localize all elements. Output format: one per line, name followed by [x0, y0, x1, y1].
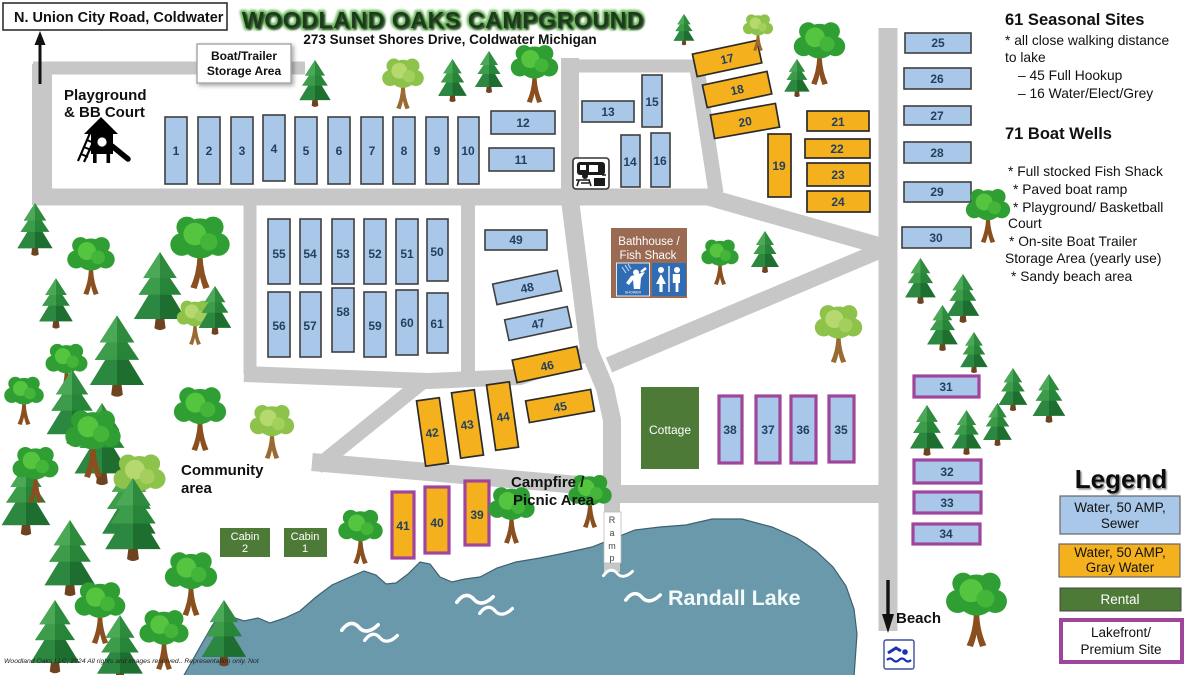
- svg-text:Cabin: Cabin: [231, 531, 260, 543]
- svg-text:Legend: Legend: [1075, 464, 1167, 494]
- svg-text:R: R: [609, 515, 616, 525]
- svg-text:37: 37: [761, 423, 775, 437]
- svg-text:20: 20: [737, 114, 753, 130]
- svg-text:– 16 Water/Elect/Grey: – 16 Water/Elect/Grey: [1018, 86, 1153, 101]
- svg-text:Bathhouse /: Bathhouse /: [618, 236, 680, 248]
- svg-text:71 Boat Wells: 71 Boat Wells: [1005, 125, 1112, 143]
- svg-text:Premium Site: Premium Site: [1080, 642, 1161, 657]
- svg-text:26: 26: [930, 72, 944, 86]
- svg-text:Beach: Beach: [896, 610, 941, 627]
- svg-text:Lakefront/: Lakefront/: [1091, 625, 1151, 640]
- svg-text:41: 41: [396, 519, 410, 533]
- svg-text:SHOWER: SHOWER: [625, 291, 642, 295]
- svg-text:7: 7: [369, 144, 376, 158]
- svg-text:38: 38: [723, 423, 737, 437]
- svg-text:52: 52: [368, 247, 382, 261]
- svg-text:Court: Court: [1008, 216, 1042, 231]
- svg-text:50: 50: [430, 245, 444, 259]
- svg-text:Cabin: Cabin: [291, 531, 320, 543]
- svg-text:5: 5: [303, 144, 310, 158]
- svg-text:14: 14: [623, 155, 637, 169]
- svg-text:61 Seasonal Sites: 61 Seasonal Sites: [1005, 11, 1144, 29]
- svg-text:55: 55: [272, 247, 286, 261]
- svg-text:45: 45: [552, 399, 568, 415]
- svg-text:54: 54: [303, 247, 317, 261]
- svg-text:* On-site Boat Trailer: * On-site Boat Trailer: [1009, 234, 1137, 249]
- svg-text:8: 8: [401, 144, 408, 158]
- svg-text:10: 10: [461, 144, 475, 158]
- svg-text:* Sandy beach area: * Sandy beach area: [1011, 269, 1133, 284]
- svg-text:44: 44: [496, 409, 511, 425]
- svg-text:11: 11: [515, 153, 528, 167]
- svg-text:* Paved boat ramp: * Paved boat ramp: [1013, 182, 1128, 197]
- svg-text:29: 29: [930, 185, 944, 199]
- svg-text:15: 15: [645, 95, 659, 109]
- svg-text:1: 1: [302, 543, 308, 555]
- svg-text:31: 31: [939, 380, 953, 394]
- svg-text:Community: Community: [181, 462, 264, 479]
- svg-text:53: 53: [336, 247, 350, 261]
- svg-text:Water, 50 AMP,: Water, 50 AMP,: [1074, 545, 1166, 560]
- svg-text:58: 58: [336, 305, 350, 319]
- svg-text:3: 3: [239, 144, 246, 158]
- svg-text:& BB Court: & BB Court: [64, 104, 145, 121]
- svg-text:Water, 50 AMP,: Water, 50 AMP,: [1074, 500, 1166, 515]
- svg-text:60: 60: [400, 316, 414, 330]
- svg-text:1: 1: [173, 144, 180, 158]
- svg-text:Storage Area (yearly use): Storage Area (yearly use): [1005, 251, 1161, 266]
- svg-text:Playground: Playground: [64, 87, 147, 104]
- svg-text:Gray Water: Gray Water: [1086, 560, 1155, 575]
- svg-text:2: 2: [206, 144, 213, 158]
- svg-text:59: 59: [368, 319, 382, 333]
- svg-text:N. Union City Road, Coldwater: N. Union City Road, Coldwater: [14, 10, 224, 26]
- svg-text:22: 22: [830, 142, 844, 156]
- svg-text:43: 43: [460, 417, 475, 433]
- svg-text:19: 19: [772, 159, 786, 173]
- svg-text:25: 25: [931, 36, 945, 50]
- svg-text:49: 49: [509, 233, 523, 247]
- svg-text:51: 51: [400, 247, 414, 261]
- svg-text:4: 4: [271, 142, 278, 156]
- svg-text:a: a: [609, 528, 614, 538]
- svg-text:Randall Lake: Randall Lake: [668, 586, 801, 610]
- svg-text:24: 24: [831, 195, 845, 209]
- svg-text:– 45 Full Hookup: – 45 Full Hookup: [1018, 68, 1123, 83]
- svg-text:13: 13: [601, 105, 615, 119]
- svg-text:36: 36: [796, 423, 810, 437]
- svg-text:32: 32: [940, 465, 954, 479]
- svg-text:273 Sunset Shores Drive, Coldw: 273 Sunset Shores Drive, Coldwater Michi…: [303, 32, 596, 47]
- svg-text:28: 28: [930, 146, 944, 160]
- svg-text:40: 40: [430, 516, 444, 530]
- svg-text:Picnic Area: Picnic Area: [513, 492, 595, 509]
- svg-text:12: 12: [516, 116, 530, 130]
- svg-text:Campfire /: Campfire /: [511, 474, 585, 491]
- svg-text:2: 2: [242, 543, 248, 555]
- svg-text:p: p: [609, 553, 614, 563]
- svg-text:57: 57: [303, 319, 317, 333]
- svg-text:42: 42: [425, 425, 440, 441]
- svg-text:34: 34: [939, 527, 953, 541]
- svg-text:6: 6: [336, 144, 343, 158]
- svg-text:9: 9: [434, 144, 441, 158]
- svg-text:* Playground/ Basketball: * Playground/ Basketball: [1013, 200, 1163, 215]
- svg-text:* Full stocked Fish Shack: * Full stocked Fish Shack: [1008, 164, 1163, 179]
- svg-text:61: 61: [430, 317, 444, 331]
- svg-text:21: 21: [831, 115, 845, 129]
- svg-text:Storage Area: Storage Area: [207, 64, 282, 78]
- svg-text:WOODLAND OAKS CAMPGROUND: WOODLAND OAKS CAMPGROUND: [242, 7, 644, 33]
- svg-text:* all close walking distance: * all close walking distance: [1005, 33, 1169, 48]
- svg-text:Sewer: Sewer: [1101, 516, 1140, 531]
- svg-text:35: 35: [834, 423, 848, 437]
- svg-text:Cottage: Cottage: [649, 423, 691, 437]
- svg-text:Fish Shack: Fish Shack: [620, 250, 677, 262]
- svg-text:39: 39: [470, 508, 484, 522]
- svg-text:23: 23: [831, 168, 845, 182]
- svg-text:to lake: to lake: [1005, 50, 1046, 65]
- svg-text:Woodland Oaks LLC, 2024 All ri: Woodland Oaks LLC, 2024 All rights and i…: [4, 658, 260, 665]
- svg-text:Boat/Trailer: Boat/Trailer: [211, 49, 277, 63]
- svg-text:m: m: [608, 541, 616, 551]
- svg-text:56: 56: [272, 319, 286, 333]
- svg-text:30: 30: [929, 231, 943, 245]
- svg-text:27: 27: [930, 109, 944, 123]
- svg-text:16: 16: [653, 154, 667, 168]
- svg-text:33: 33: [940, 496, 954, 510]
- svg-text:area: area: [181, 480, 213, 497]
- svg-text:Rental: Rental: [1100, 592, 1139, 607]
